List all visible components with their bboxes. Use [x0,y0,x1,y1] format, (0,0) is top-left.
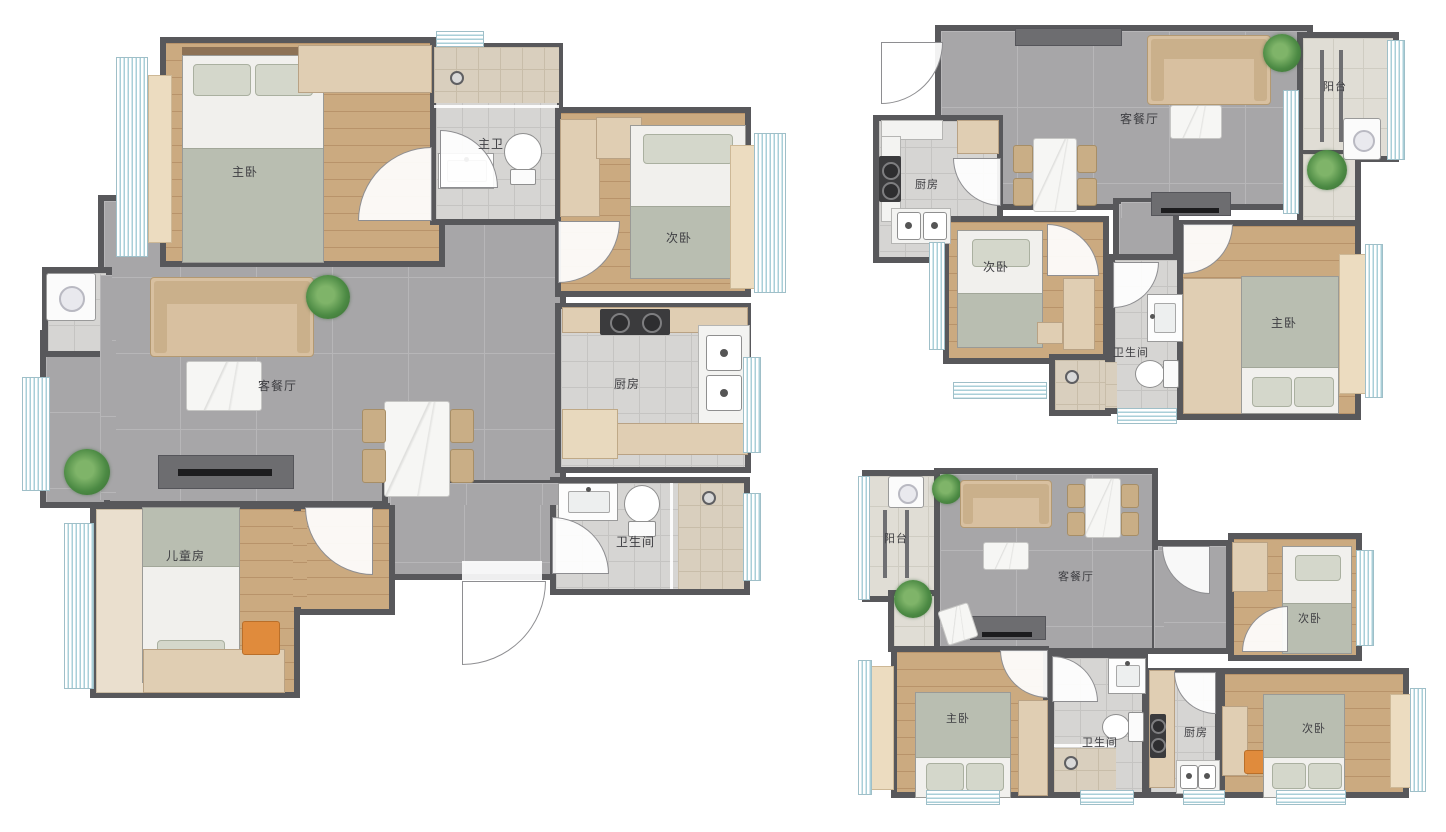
sofa-arm [1151,39,1164,101]
sink-basin [1116,665,1140,687]
dining-chair [1013,178,1033,206]
room-label-living-dining: 客餐厅 [1120,110,1159,127]
window-seat-cushion [1390,694,1412,788]
toilet-bowl [1135,360,1165,388]
dining-chair [1013,145,1033,173]
window [1356,550,1374,646]
window-seat-cushion [1339,254,1367,394]
stove [600,309,670,335]
plant-icon [1307,150,1347,190]
room-label-kitchen: 厨房 [1184,724,1208,740]
window-seat-cushion [730,145,756,289]
entry-opening [462,561,542,583]
stove [1150,714,1166,758]
room-label-bathroom: 卫生间 [1113,344,1149,360]
single-bed [957,230,1043,348]
window [953,382,1047,399]
plan-b-shower-annex [1049,354,1111,416]
pillow [1294,377,1334,407]
sink-basin [568,491,610,513]
pillow [926,763,964,791]
room-label-balcony: 阳台 [1323,78,1347,94]
sofa-arm [154,281,167,353]
shower-tile-area [1054,748,1116,792]
bay-window [858,660,872,795]
dining-table [384,401,450,497]
faucet-icon [1125,661,1130,666]
drain-icon [720,349,728,357]
washing-machine [1343,118,1381,160]
room-label-master-bath: 主卫 [478,135,504,152]
kitchen-sink [706,335,742,371]
drain-icon [931,222,938,229]
pillow [966,763,1004,791]
room-label-bathroom: 卫生间 [616,533,655,550]
window [1183,790,1225,805]
shower-glass-divider [434,105,559,108]
window [436,31,484,47]
bathroom-vanity [1108,658,1146,694]
plant-icon [306,275,350,319]
plant-icon [932,474,962,504]
wardrobe [298,45,432,93]
wardrobe [1232,542,1268,592]
burner-icon [642,313,662,333]
bathroom-vanity [558,483,618,521]
sofa-arm [1039,484,1049,524]
shower-head-icon [702,491,716,505]
room-label-second-bedroom: 次卧 [983,258,1009,275]
bay-window [64,523,94,689]
washing-machine [46,273,96,321]
tv-screen [1161,208,1219,213]
shower-head-icon [450,71,464,85]
stove [879,156,901,202]
bedside-table [1037,322,1063,344]
room-label-master-bedroom: 主卧 [232,163,258,180]
window [1080,790,1134,805]
faucet-icon [1150,314,1155,319]
washer-drum-icon [59,286,85,312]
window [1283,90,1299,214]
wardrobe [1018,700,1048,796]
plant-icon [894,580,932,618]
floor-patch [1154,550,1164,648]
window [1276,790,1346,805]
dining-chair [1067,512,1085,536]
room-label-balcony: 阳台 [884,530,908,546]
toilet-tank [1163,360,1179,388]
desk-cabinet [560,119,600,217]
room-label-second-bedroom-top: 次卧 [1298,610,1322,626]
room-label-living-dining: 客餐厅 [258,377,297,394]
drain-icon [720,389,728,397]
tv-console [1015,28,1122,46]
single-bed [630,125,746,279]
faucet-icon [586,487,591,492]
room-label-second-bedroom: 次卧 [666,229,692,246]
room-label-living-dining: 客餐厅 [1058,568,1094,584]
drain-icon [905,222,912,229]
sink-basin [1154,303,1176,333]
window [926,790,1000,805]
room-label-kids-room: 儿童房 [166,547,205,564]
room-label-kitchen: 厨房 [614,375,640,392]
pillow [1308,763,1342,789]
kitchen-sink [706,375,742,411]
burner-icon [882,162,900,180]
orange-chair [242,621,280,655]
dining-chair [1121,512,1139,536]
plan-c: 阳台 客餐厅 次卧 主卧 卫生间 厨房 次卧 [858,460,1428,825]
coffee-table [1170,105,1222,139]
washer-drum-icon [898,484,918,504]
window [1387,40,1405,160]
sofa-back [155,281,309,304]
dining-chair [362,449,386,483]
entry-door-arc [462,581,546,665]
drain-icon [1186,773,1192,779]
sofa [960,480,1052,528]
kitchen-sink [1198,765,1216,789]
plant-icon [1263,34,1301,72]
master-double-bed [1241,276,1339,414]
floor-patch [293,511,307,607]
bathroom-vanity [1147,294,1183,342]
window-seat-strip [96,509,146,693]
window [929,242,945,350]
pillow [1252,377,1292,407]
dining-chair [1067,484,1085,508]
pillow [1295,555,1341,581]
room-label-kitchen: 厨房 [915,176,939,192]
kitchen-upper-cabinets [957,120,999,154]
wardrobe [1063,278,1095,350]
entry-door-arc [881,42,943,104]
dining-chair [362,409,386,443]
dining-chair [1077,145,1097,173]
blanket [958,293,1042,347]
floor-patch [1105,362,1117,408]
coffee-table [983,542,1029,570]
plant-icon [64,449,110,495]
washing-machine [888,476,924,508]
window [743,357,761,453]
burner-icon [610,313,630,333]
toilet-tank [1128,712,1144,742]
drying-rail [1320,50,1324,142]
room-label-bathroom: 卫生间 [1082,734,1118,750]
bay-window [1365,244,1383,398]
pillow [193,64,251,96]
toilet-bowl [504,133,542,171]
shower-head-icon [1064,756,1078,770]
kitchen-sink [923,212,947,240]
plan-b: 客餐厅 厨房 阳台 次卧 卫生间 主卧 [865,10,1410,430]
window [22,377,50,491]
sofa [1147,35,1271,105]
tv-screen [982,632,1032,637]
sofa [150,277,314,357]
toilet-bowl [624,485,660,523]
floor-plans-canvas: 主卧 主卫 次卧 客餐厅 厨房 卫生间 儿童房 [0,0,1446,832]
burner-icon [1151,738,1166,753]
dining-table [1033,138,1077,212]
coffee-table [186,361,262,411]
sofa-back [965,484,1047,498]
room-label-master-bedroom: 主卧 [1271,314,1297,331]
dining-chair [450,449,474,483]
storage-cabinets [143,649,285,693]
window-seat-cushion [870,666,894,790]
double-bed [1263,694,1345,798]
window-seat-cushion [148,75,172,243]
master-double-bed [915,692,1011,798]
tv-screen [178,469,272,476]
floor-patch [100,275,112,350]
pillow [1272,763,1306,789]
dining-chair [1121,484,1139,508]
bay-window [116,57,148,257]
bay-window [1410,688,1426,792]
dining-table [1085,478,1121,538]
shower-head-icon [1065,370,1079,384]
wardrobe-bench [1183,278,1243,414]
sofa-back [1152,39,1266,59]
drain-icon [1204,773,1210,779]
bay-window [754,133,786,293]
plan-a: 主卧 主卫 次卧 客餐厅 厨房 卫生间 儿童房 [10,25,800,725]
single-bed [1282,546,1352,654]
window [743,493,761,581]
pillow [643,134,733,164]
shower-glass-divider [670,483,673,589]
burner-icon [1151,719,1166,734]
sofa-arm [963,484,973,524]
room-label-second-bedroom-bottom: 次卧 [1302,720,1326,736]
kitchen-sink [1180,765,1198,789]
washer-drum-icon [1353,130,1375,152]
window [1117,408,1177,424]
dining-chair [1077,178,1097,206]
room-label-master-bedroom: 主卧 [946,710,970,726]
refrigerator [562,409,618,459]
toilet-tank [510,169,536,185]
burner-icon [882,182,900,200]
dining-chair [450,409,474,443]
kitchen-sink [897,212,921,240]
window [858,476,870,600]
